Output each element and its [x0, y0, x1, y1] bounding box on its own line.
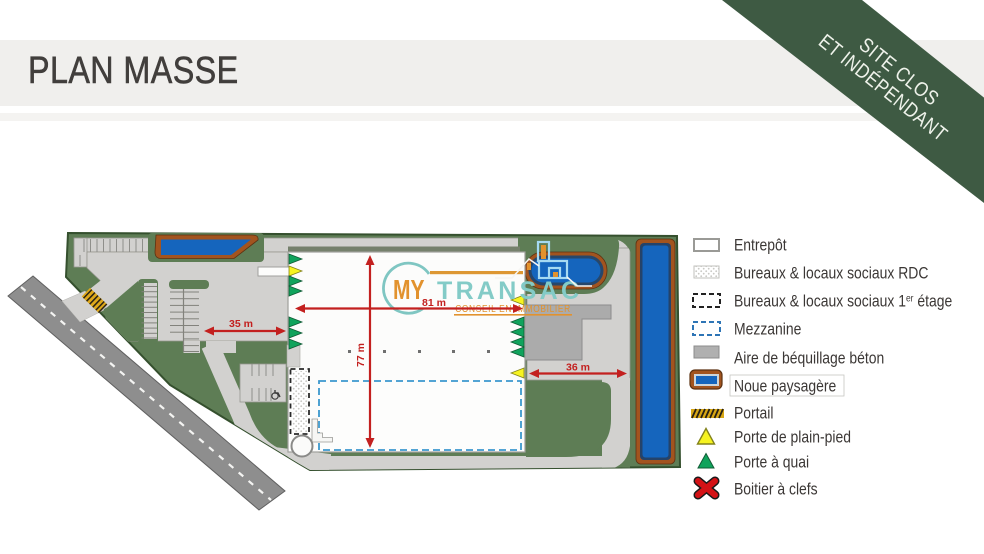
svg-text:77 m: 77 m — [355, 343, 367, 367]
svg-text:81 m: 81 m — [422, 297, 446, 309]
svg-text:Portail: Portail — [734, 404, 774, 422]
svg-text:Porte de plain-pied: Porte de plain-pied — [734, 428, 851, 446]
svg-text:36 m: 36 m — [566, 362, 590, 374]
svg-text:Mezzanine: Mezzanine — [734, 320, 801, 338]
svg-text:Boitier à clefs: Boitier à clefs — [734, 480, 818, 498]
svg-text:Entrepôt: Entrepôt — [734, 236, 787, 254]
svg-text:35 m: 35 m — [229, 318, 253, 330]
svg-text:Noue paysagère: Noue paysagère — [734, 377, 836, 395]
svg-text:MY: MY — [393, 275, 425, 306]
svg-text:PLAN MASSE: PLAN MASSE — [28, 50, 239, 92]
svg-text:Bureaux & locaux sociaux RDC: Bureaux & locaux sociaux RDC — [734, 264, 928, 282]
svg-text:Bureaux & locaux sociaux 1er é: Bureaux & locaux sociaux 1er étage — [734, 292, 952, 310]
svg-text:TRANSAC: TRANSAC — [437, 277, 582, 305]
svg-text:Porte à quai: Porte à quai — [734, 453, 809, 471]
svg-text:Aire de béquillage béton: Aire de béquillage béton — [734, 349, 884, 367]
